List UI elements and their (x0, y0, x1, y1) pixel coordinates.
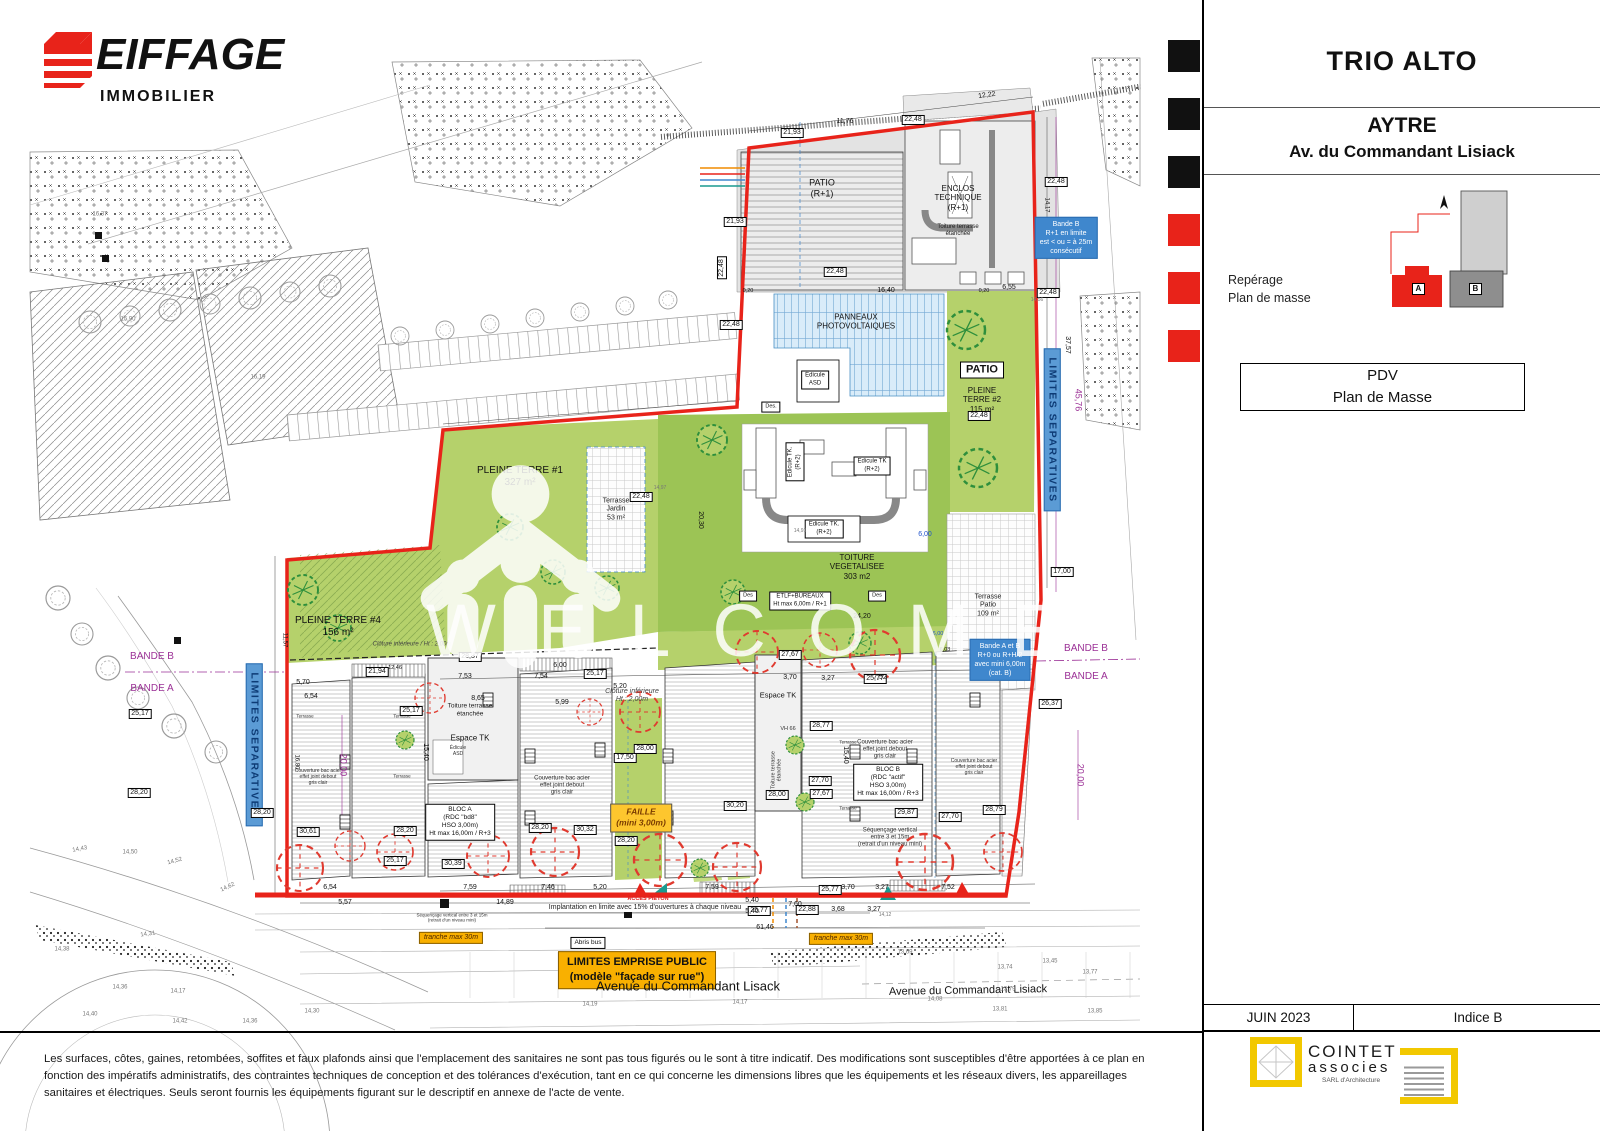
minimap-label-b: B (1469, 283, 1482, 295)
plan-sheet: PATIO (R+1)ENCLOS TECHNIQUE (R+1)Toiture… (0, 0, 1600, 1131)
tree-icon (796, 793, 814, 811)
stair-icon (525, 749, 535, 763)
stair-icon (970, 693, 980, 707)
eiffage-logo-icon (40, 28, 94, 90)
architect-logo-icon (1250, 1037, 1302, 1087)
north-arrow-icon (1440, 195, 1448, 209)
stair-icon (907, 749, 917, 763)
existing-tree-icon (571, 303, 589, 321)
stair-icon (340, 815, 350, 829)
footer-divider (0, 1031, 1202, 1033)
tree-icon (288, 575, 318, 605)
existing-tree-icon (659, 291, 677, 309)
stair-icon (340, 755, 350, 769)
eiffage-logo: EIFFAGE IMMOBILIER (40, 28, 370, 143)
existing-tree-icon (71, 623, 93, 645)
existing-tree-icon (616, 297, 634, 315)
registration-mark (1168, 272, 1200, 304)
stair-icon (525, 811, 535, 825)
registration-mark (1168, 330, 1200, 362)
minimap-label-a: A (1412, 283, 1425, 295)
date-indice-row: JUIN 2023 Indice B (1204, 1004, 1600, 1032)
registration-mark (1168, 98, 1200, 130)
existing-tree-icon (526, 309, 544, 327)
legal-disclaimer: Les surfaces, côtes, gaines, retombées, … (44, 1051, 1150, 1102)
existing-tree-icon (162, 714, 186, 738)
title-block-panel: TRIO ALTO AYTRE Av. du Commandant Lisiac… (1202, 0, 1600, 1131)
patio-r1-roof (741, 152, 903, 290)
project-title: TRIO ALTO (1204, 46, 1600, 77)
minimap-drawing (1352, 185, 1517, 315)
stair-icon (663, 811, 673, 825)
tree-icon (947, 311, 985, 349)
brand-division: IMMOBILIER (100, 88, 216, 106)
registration-mark (1168, 214, 1200, 246)
tree-icon (786, 736, 804, 754)
tree-icon (396, 731, 414, 749)
reperage-caption: Repérage Plan de masse (1228, 272, 1311, 307)
tree-icon (959, 449, 997, 487)
brand-name: EIFFAGE (96, 30, 284, 80)
registration-mark (1168, 40, 1200, 72)
stair-icon (850, 807, 860, 821)
architect-tagline: SARL d'Architecture (1322, 1077, 1380, 1084)
site-interior (287, 88, 1060, 896)
tree-icon (691, 859, 709, 877)
reperage-minimap (1352, 185, 1517, 320)
stair-icon (595, 743, 605, 757)
project-city: AYTRE (1204, 114, 1600, 138)
date-cell: JUIN 2023 (1204, 1005, 1354, 1030)
registration-mark (1168, 156, 1200, 188)
existing-tree-icon (96, 656, 120, 680)
existing-tree-icon (391, 327, 409, 345)
document-type-box: PDV Plan de Masse (1240, 363, 1525, 411)
espace-tk-tower (755, 655, 801, 811)
architect-name2: associes (1308, 1059, 1390, 1076)
tree-icon (697, 425, 727, 455)
project-address: Av. du Commandant Lisiack (1204, 142, 1600, 162)
stair-icon (850, 745, 860, 759)
stair-icon (663, 749, 673, 763)
architect-address-block (1400, 1048, 1458, 1104)
address-lines (1404, 1063, 1444, 1097)
existing-tree-icon (127, 687, 149, 709)
existing-tree-icon (481, 315, 499, 333)
existing-tree-icon (436, 321, 454, 339)
tree-icon (325, 615, 351, 641)
existing-tree-icon (46, 586, 70, 610)
indice-cell: Indice B (1354, 1005, 1600, 1030)
